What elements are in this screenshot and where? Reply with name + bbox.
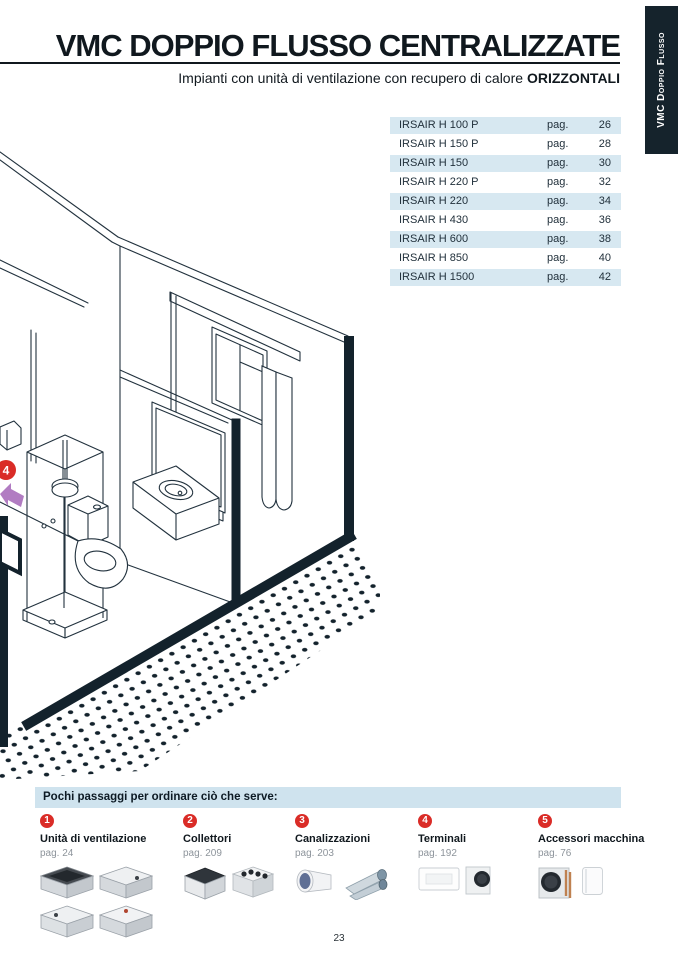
step-column-3: 3 Canalizzazioni pag. 203 — [295, 814, 407, 900]
ground-dots-pattern — [0, 543, 380, 780]
page-ref: 30 — [581, 155, 621, 172]
step-column-1: 1 Unità di ventilazione pag. 24 — [40, 814, 166, 939]
step-number-badge: 2 — [183, 814, 197, 828]
step-page-ref[interactable]: pag. 24 — [40, 848, 166, 859]
step-title: Unità di ventilazione — [40, 833, 166, 845]
product-name: IRSAIR H 150 P — [390, 136, 547, 153]
table-row[interactable]: IRSAIR H 220 Ppag.32 — [390, 174, 621, 191]
pag-label: pag. — [547, 136, 581, 153]
product-name: IRSAIR H 220 P — [390, 174, 547, 191]
step-page-ref[interactable]: pag. 192 — [418, 848, 523, 859]
table-row[interactable]: IRSAIR H 1500pag.42 — [390, 269, 621, 286]
page-ref: 36 — [581, 212, 621, 229]
step-title: Canalizzazioni — [295, 833, 407, 845]
page-number: 23 — [0, 933, 678, 944]
table-row[interactable]: IRSAIR H 220pag.34 — [390, 193, 621, 210]
pag-label: pag. — [547, 193, 581, 210]
page-subtitle: Impianti con unità di ventilazione con r… — [178, 70, 620, 86]
title-underline — [0, 62, 620, 64]
pag-label: pag. — [547, 212, 581, 229]
pag-label: pag. — [547, 231, 581, 248]
step-title: Accessori macchina — [538, 833, 650, 845]
vent-unit-image — [40, 866, 94, 900]
step-thumbnails — [183, 866, 288, 900]
step-column-5: 5 Accessori macchina pag. 76 — [538, 814, 650, 900]
step-page-ref[interactable]: pag. 209 — [183, 848, 288, 859]
flex-duct-image — [295, 866, 337, 896]
diffuser-image — [465, 866, 493, 896]
step-number-badge: 3 — [295, 814, 309, 828]
curtain-rail — [170, 292, 300, 361]
step-number-badge: 4 — [418, 814, 432, 828]
toilet — [68, 496, 128, 588]
product-name: IRSAIR H 430 — [390, 212, 547, 229]
wall-terminal — [0, 421, 21, 450]
page-title: VMC DOPPIO FLUSSO CENTRALIZZATE — [56, 28, 620, 64]
step-page-ref[interactable]: pag. 76 — [538, 848, 650, 859]
table-row[interactable]: IRSAIR H 150pag.30 — [390, 155, 621, 172]
table-row[interactable]: IRSAIR H 430pag.36 — [390, 212, 621, 229]
product-name: IRSAIR H 150 — [390, 155, 547, 172]
step-thumbnails — [538, 866, 650, 900]
table-row[interactable]: IRSAIR H 100 Ppag.26 — [390, 117, 621, 134]
metal-pipes-image — [342, 866, 388, 900]
page-ref: 38 — [581, 231, 621, 248]
step-number-badge: 1 — [40, 814, 54, 828]
washbasin-area — [133, 402, 225, 540]
pag-label: pag. — [547, 269, 581, 286]
isometric-room-diagram: 4 — [0, 130, 380, 780]
page-ref: 26 — [581, 117, 621, 134]
section-side-tab[interactable]: VMC Doppio Flusso — [645, 6, 678, 154]
step-thumbnails — [40, 866, 166, 939]
page-ref: 32 — [581, 174, 621, 191]
distributor-image — [232, 866, 274, 898]
pag-label: pag. — [547, 250, 581, 267]
table-row[interactable]: IRSAIR H 150 Ppag.28 — [390, 136, 621, 153]
products-index-table: IRSAIR H 100 Ppag.26 IRSAIR H 150 Ppag.2… — [390, 117, 621, 288]
step-column-4: 4 Terminali pag. 192 — [418, 814, 523, 896]
callout-badge-number: 4 — [3, 464, 10, 478]
step-page-ref[interactable]: pag. 203 — [295, 848, 407, 859]
catalog-page: VMC DOPPIO FLUSSO CENTRALIZZATE Impianti… — [0, 0, 678, 959]
pag-label: pag. — [547, 174, 581, 191]
step-title: Collettori — [183, 833, 288, 845]
step-title: Terminali — [418, 833, 523, 845]
step-column-2: 2 Collettori pag. 209 — [183, 814, 288, 900]
steps-heading-banner: Pochi passaggi per ordinare ciò che serv… — [35, 787, 621, 808]
page-ref: 40 — [581, 250, 621, 267]
step-thumbnails — [418, 866, 523, 896]
section-side-tab-label: VMC Doppio Flusso — [656, 32, 667, 128]
page-ref: 34 — [581, 193, 621, 210]
hanging-curtain — [262, 366, 292, 510]
page-ref: 42 — [581, 269, 621, 286]
pag-label: pag. — [547, 117, 581, 134]
product-name: IRSAIR H 850 — [390, 250, 547, 267]
table-row[interactable]: IRSAIR H 600pag.38 — [390, 231, 621, 248]
pag-label: pag. — [547, 155, 581, 172]
product-name: IRSAIR H 1500 — [390, 269, 547, 286]
cut-counter — [0, 530, 20, 573]
step-thumbnails — [295, 866, 407, 900]
page-ref: 28 — [581, 136, 621, 153]
grille-image — [418, 866, 460, 892]
product-name: IRSAIR H 600 — [390, 231, 547, 248]
subtitle-bold-text: ORIZZONTALI — [527, 70, 620, 86]
subtitle-text: Impianti con unità di ventilazione con r… — [178, 70, 527, 86]
table-row[interactable]: IRSAIR H 850pag.40 — [390, 250, 621, 267]
manifold-image — [183, 866, 227, 900]
accessory-box-image — [581, 866, 605, 896]
product-name: IRSAIR H 220 — [390, 193, 547, 210]
step-number-badge: 5 — [538, 814, 552, 828]
product-name: IRSAIR H 100 P — [390, 117, 547, 134]
accessory-unit-image — [538, 866, 576, 900]
vent-unit-image — [99, 866, 153, 900]
